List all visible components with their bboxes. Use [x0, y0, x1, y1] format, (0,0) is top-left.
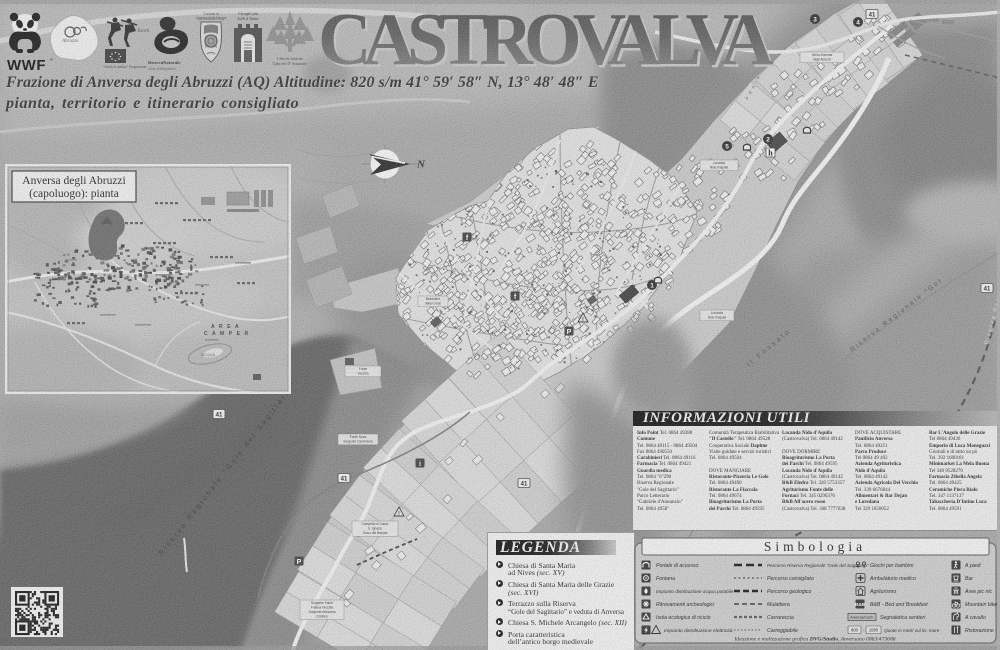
svg-text:Agriturismo: Agriturismo [869, 589, 896, 595]
svg-text:Giochi per bambini: Giochi per bambini [870, 563, 914, 569]
svg-text:della Croce: della Croce [425, 302, 441, 306]
svg-text:“Youth In Action” Programme: “Youth In Action” Programme [103, 65, 147, 69]
svg-text:Nido d'aquila: Nido d'aquila [708, 316, 727, 320]
svg-text:Ideazione e realizzazione graf: Ideazione e realizzazione grafica DVG/St… [733, 636, 895, 643]
svg-text:degli Abruzzi: degli Abruzzi [813, 58, 831, 62]
svg-text:N: N [416, 159, 426, 171]
svg-text:RiservaNaturale: RiservaNaturale [148, 60, 180, 65]
svg-text:Belvedere: Belvedere [426, 297, 441, 301]
svg-text:5: 5 [725, 143, 729, 150]
svg-text:Youth: Youth [137, 28, 150, 34]
svg-text:2: 2 [766, 136, 770, 143]
svg-text:Locanda: Locanda [711, 311, 723, 315]
svg-text:Segnaletica sentieri: Segnaletica sentieri [880, 615, 926, 621]
svg-text:Fonte: Fonte [359, 367, 367, 371]
svg-text:Carrareccia: Carrareccia [767, 615, 794, 621]
svg-text:Locanda: Locanda [713, 161, 725, 165]
svg-text:Percorso Riserva Regionale “Go: Percorso Riserva Regionale “Gole del Sag… [767, 563, 869, 568]
svg-text:Gole delSagittario: Gole delSagittario [148, 66, 176, 71]
svg-text:Bar: Bar [965, 576, 973, 582]
svg-text:Campetto di Calcio: Campetto di Calcio [362, 522, 389, 526]
svg-text:i: i [419, 461, 421, 468]
svg-text:Sorgente Arteziana: Sorgente Arteziana [308, 610, 335, 614]
svg-text:Sorgente Cantoniera: Sorgente Cantoniera [343, 440, 373, 444]
svg-text:P: P [567, 329, 572, 336]
svg-text:Fonte Nova: Fonte Nova [350, 435, 367, 439]
svg-text:Mulattiera: Mulattiera [767, 602, 790, 608]
svg-text:h: h [768, 149, 773, 158]
svg-text:Impianto distribuzione elettri: Impianto distribuzione elettricità [664, 628, 733, 634]
svg-text:4: 4 [856, 19, 860, 26]
svg-text:A piedi: A piedi [964, 563, 982, 569]
svg-text:41: 41 [521, 482, 528, 488]
svg-text:Ritrovamenti archeologici: Ritrovamenti archeologici [656, 602, 715, 608]
svg-text:Percorso consigliato: Percorso consigliato [767, 576, 814, 582]
svg-text:1: 1 [650, 282, 654, 289]
svg-text:Nido d'aquila: Nido d'aquila [710, 166, 729, 170]
svg-text:CASTROVALVA: CASTROVALVA [318, 0, 774, 80]
svg-text:Cimitero: Cimitero [316, 614, 328, 618]
svg-text:A cavallo: A cavallo [964, 615, 986, 621]
svg-text:41: 41 [216, 413, 223, 419]
svg-text:WWF: WWF [7, 57, 46, 72]
svg-text:Abruzzo: Abruzzo [61, 39, 79, 44]
svg-text:Mountain bike: Mountain bike [965, 602, 997, 608]
svg-text:Fratura Vecchia: Fratura Vecchia [311, 606, 334, 610]
svg-text:1080: 1080 [869, 628, 879, 633]
svg-text:B&B: B&B [855, 602, 866, 607]
svg-text:Isola ecologica di riciclo: Isola ecologica di riciclo [656, 615, 711, 621]
svg-text:S. Ignazio: S. Ignazio [368, 527, 382, 531]
svg-text:Sorgente Fante: Sorgente Fante [311, 601, 333, 605]
svg-text:Impianto distribuzione acqua p: Impianto distribuzione acqua potabile [656, 589, 734, 594]
svg-text:ACQUA: ACQUA [201, 352, 216, 357]
svg-text:41: 41 [984, 287, 991, 293]
svg-text:C A M P E R: C A M P E R [204, 331, 250, 337]
svg-text:Portale di accesso: Portale di accesso [656, 563, 699, 569]
svg-text:Gabriele D’Annunzio: Gabriele D’Annunzio [273, 61, 308, 66]
svg-text:Aree pic nic: Aree pic nic [964, 589, 993, 595]
svg-text:41: 41 [341, 477, 348, 483]
svg-text:Anversa/Castr.: Anversa/Castr. [850, 616, 874, 620]
svg-text:Anversa degli Abruzzi: Anversa degli Abruzzi [22, 175, 125, 187]
svg-text:Vecchia: Vecchia [357, 372, 368, 376]
svg-text:Carreggiabile: Carreggiabile [767, 628, 798, 634]
svg-text:B&B - Bed and Breakfast: B&B - Bed and Breakfast [870, 602, 928, 608]
svg-text:800: 800 [851, 628, 859, 633]
svg-text:P: P [297, 559, 302, 566]
svg-text:Quote in metri sul liv. mare: Quote in metri sul liv. mare [884, 628, 940, 633]
svg-text:Percorso geologico: Percorso geologico [767, 589, 812, 595]
svg-text:Ambulatorio medico: Ambulatorio medico [869, 576, 916, 582]
svg-text:Verso Anversa: Verso Anversa [812, 53, 833, 57]
svg-text:(capoluogo): pianta: (capoluogo): pianta [29, 188, 119, 200]
svg-text:3: 3 [813, 16, 817, 23]
svg-text:belli d’Italia: belli d’Italia [237, 16, 258, 21]
svg-text:Gioco del Barrato: Gioco del Barrato [363, 531, 388, 535]
svg-text:Fontana: Fontana [656, 576, 675, 582]
svg-text:Ristorazione: Ristorazione [965, 628, 994, 634]
svg-text:Simbologia: Simbologia [764, 539, 866, 554]
svg-text:41: 41 [869, 13, 876, 19]
svg-text:A R E A: A R E A [211, 324, 240, 330]
svg-text:®: ® [50, 57, 53, 62]
